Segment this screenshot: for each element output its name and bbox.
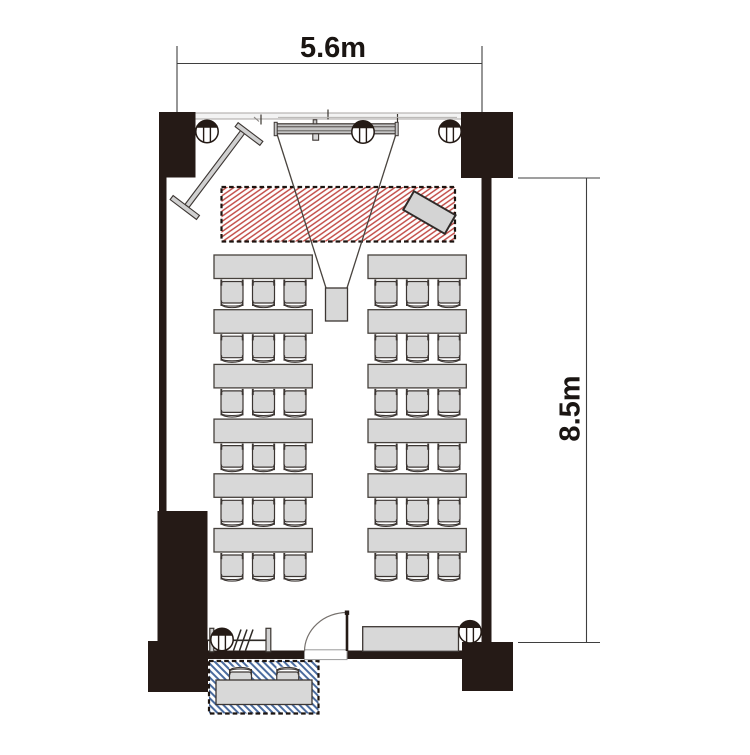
svg-text:5.6m: 5.6m [300,32,366,64]
svg-text:8.5m: 8.5m [555,375,587,441]
